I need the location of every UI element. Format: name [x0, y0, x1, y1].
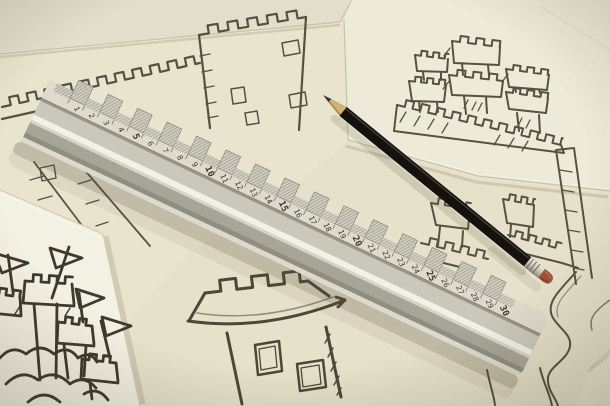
photo-castle-sketches: Photograph of hand-drawn pencil castle s… — [0, 0, 610, 406]
photo-canvas: Photograph of hand-drawn pencil castle s… — [0, 0, 610, 406]
vignette — [0, 0, 610, 406]
